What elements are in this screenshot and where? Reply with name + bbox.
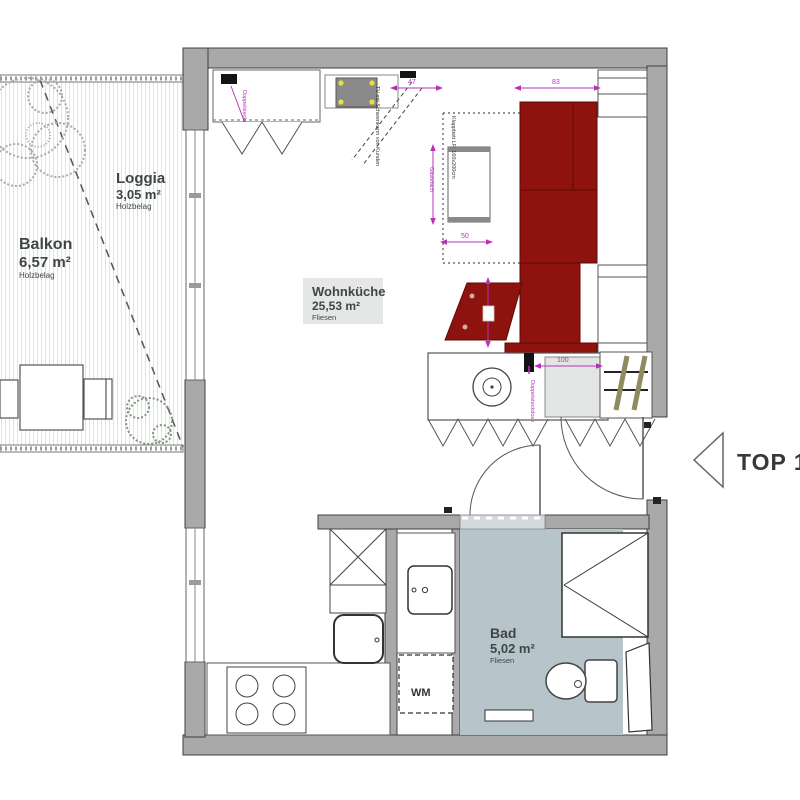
gaestefach-note: Gästefach (428, 167, 434, 192)
dim-50: 50 (443, 233, 490, 242)
window-upper (186, 130, 204, 380)
loggia-size: 3,05 m² (116, 187, 161, 202)
burner (236, 703, 258, 725)
washbasin (408, 566, 452, 614)
balcony-railing-top (0, 75, 183, 82)
tv-note: TV mit Schwenkarm von Kunden (374, 86, 380, 166)
balcony-loggia-area: Loggia 3,05 m² Holzbelag Balkon 6,57 m² … (0, 75, 183, 452)
balcony-chair-left (0, 380, 18, 418)
dim-100-label: 100 (557, 357, 569, 364)
couch-seat-section (520, 263, 580, 343)
vanity-niche: WM (397, 533, 455, 713)
balcony-railing-bottom (0, 445, 183, 452)
bathroom-bench (485, 710, 533, 721)
tall-cabinet-cross (330, 529, 386, 585)
socket-symbol (221, 74, 237, 84)
dim-47: 47 (393, 79, 440, 88)
balkon-name: Balkon (19, 236, 72, 253)
shelf-mid-right (598, 265, 647, 355)
balkon-floor: Holzbelag (19, 271, 55, 280)
balkon-size: 6,57 m² (19, 254, 71, 271)
wohnkueche-size: 25,53 m² (312, 299, 360, 313)
wall-shelves-right (598, 70, 647, 355)
couch (445, 102, 597, 355)
washing-machine: WM (399, 655, 453, 713)
dim-50-label: 50 (461, 233, 469, 240)
bathroom-radiator (626, 643, 652, 732)
klappbett: Klappbett LF: 160x200cm Gästefach (428, 113, 520, 263)
cabinet-shelf (330, 585, 386, 613)
wohnkueche-label: Wohnküche 25,53 m² Fliesen (303, 278, 385, 324)
couch-back-section (520, 102, 597, 263)
dim-83-label: 83 (552, 79, 560, 86)
entrance-door (561, 417, 661, 504)
balcony-chair-right (84, 379, 112, 419)
dim-47-label: 47 (408, 79, 416, 86)
bad-size: 5,02 m² (490, 641, 535, 656)
toilet-cistern (585, 660, 617, 702)
loggia-floor: Holzbelag (116, 202, 152, 211)
wall-bath-left (318, 515, 460, 529)
floor-plan-page: Loggia 3,05 m² Holzbelag Balkon 6,57 m² … (0, 0, 800, 800)
bathroom: Bad 5,02 m² Fliesen (460, 515, 652, 735)
wall-top (183, 48, 667, 68)
wall-left-corner (183, 48, 208, 130)
loggia-name: Loggia (116, 170, 166, 187)
burner (236, 675, 258, 697)
dim-83: 83 (517, 79, 598, 88)
entry-wardrobe: Doppelsteckdose (213, 70, 320, 154)
door-handle-symbol (444, 507, 452, 513)
unit-label: TOP 14 (737, 449, 800, 475)
hanging-rail-symbol (222, 122, 302, 154)
kitchen-island: Doppelsteckdose (428, 353, 608, 422)
island-socket-note: Doppelsteckdose (529, 380, 535, 422)
window-lower (186, 528, 204, 662)
klappbett-note: Klappbett LF: 160x200cm (450, 116, 456, 179)
bathroom-threshold (460, 515, 545, 529)
wall-left-middle (185, 380, 205, 528)
wm-label: WM (411, 687, 431, 699)
wall-bath-right (545, 515, 649, 529)
unit-entrance-marker: TOP 14 (694, 433, 800, 487)
balcony-table (20, 365, 83, 430)
entrance-arrow-icon (694, 433, 723, 487)
bad-name: Bad (490, 625, 516, 641)
tv-symbol (400, 71, 416, 78)
burner (273, 703, 295, 725)
bad-floor: Fliesen (490, 656, 514, 665)
shower (562, 533, 648, 637)
loft-ladder-area (600, 352, 652, 418)
burner (273, 675, 295, 697)
floor-plan-canvas: Loggia 3,05 m² Holzbelag Balkon 6,57 m² … (0, 0, 800, 800)
kitchen-run (207, 529, 390, 735)
cabinet-front-zigzag (428, 419, 655, 446)
cooktop (227, 667, 306, 733)
wohnkueche-name: Wohnküche (312, 284, 385, 299)
wall-left-bottom (185, 662, 205, 737)
wall-bottom (183, 735, 667, 755)
wohnkueche-floor: Fliesen (312, 313, 336, 322)
